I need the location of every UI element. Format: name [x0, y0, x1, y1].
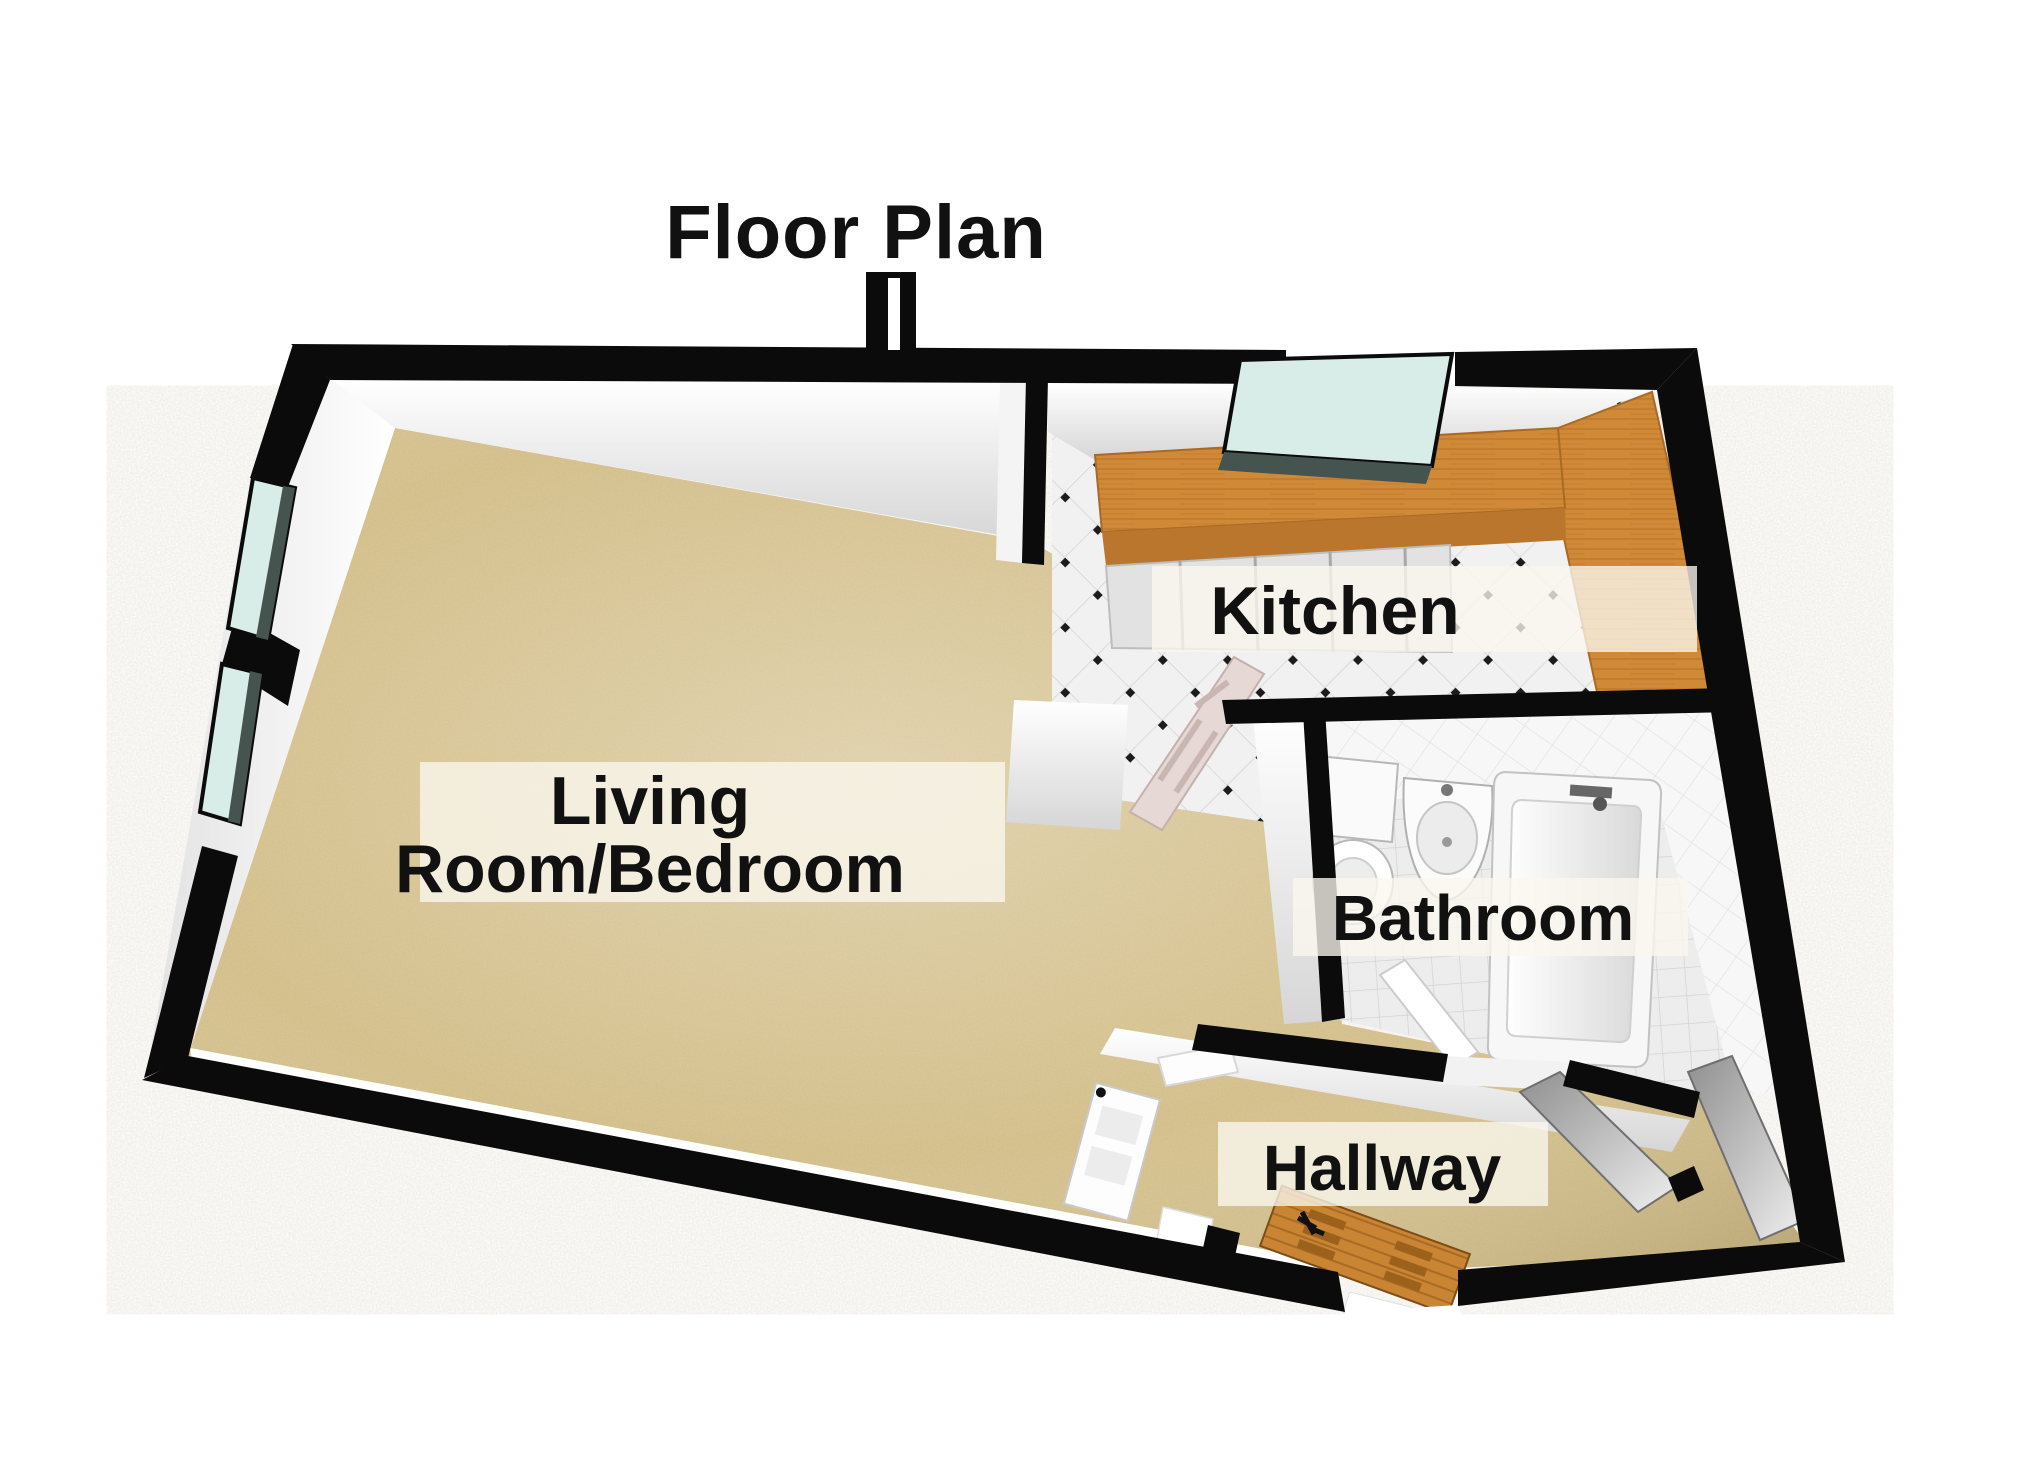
floor-plan-page: Floor Plan Living Room/Bedroom Kitchen B…: [0, 0, 2025, 1473]
top-wall: [291, 344, 1286, 384]
corridor-wall-face: [1006, 700, 1128, 830]
entrance-threshold: [1345, 1305, 1470, 1348]
living-kitchen-wall: [1022, 377, 1048, 565]
kitchen-window-glass: [1224, 354, 1452, 466]
sink-faucet-icon: [1441, 784, 1453, 796]
hallway-label: Hallway: [1263, 1132, 1502, 1204]
kitchen-window: [1218, 354, 1452, 484]
top-wall-right-segment: [1455, 348, 1697, 390]
sink-drain-icon: [1442, 837, 1452, 847]
kitchen-label: Kitchen: [1210, 573, 1459, 649]
living-wall-inner-face: [996, 380, 1026, 563]
bathtub-tap-icon: [1593, 797, 1607, 811]
living-label-line2: Room/Bedroom: [395, 831, 905, 907]
bathroom-label: Bathroom: [1332, 882, 1634, 954]
page-title: Floor Plan: [665, 190, 1047, 275]
floor-plan-canvas: Floor Plan Living Room/Bedroom Kitchen B…: [0, 0, 2025, 1473]
living-label-line1: Living: [550, 763, 750, 839]
top-wall-jog-gap: [888, 278, 900, 350]
